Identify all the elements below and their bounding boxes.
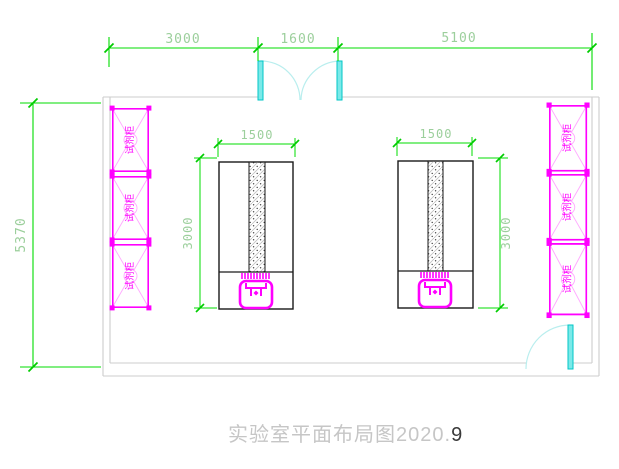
dimension-bench-depth: 3000 xyxy=(181,154,217,312)
dimension-room-height: 5370 xyxy=(14,99,101,372)
door-swing-arc xyxy=(526,325,570,369)
dimension-bench-depth: 3000 xyxy=(478,154,513,312)
cabinet-label: 试剂柜 xyxy=(124,261,136,290)
door-leaf xyxy=(258,61,263,100)
door-swing-arc xyxy=(261,61,300,100)
dimension-text: 3000 xyxy=(165,32,200,47)
reagent-cabinet-column-left: 试剂柜 试剂柜 试剂柜 xyxy=(110,106,152,311)
dimension-text: 1500 xyxy=(241,128,274,142)
drawing-title-suffix: 9 xyxy=(451,424,463,446)
dimension-text: 3000 xyxy=(181,217,195,250)
dimension-text: 5100 xyxy=(441,31,476,46)
floor-plan-canvas: 3000 1600 5100 5370 试剂柜 试剂柜 试剂柜 试剂柜 试剂柜 … xyxy=(0,0,619,469)
lab-bench-left: 1500 3000 xyxy=(181,128,299,312)
dimension-top-chain: 3000 1600 5100 xyxy=(105,31,597,90)
cabinet-label: 试剂柜 xyxy=(562,264,574,293)
floor-plan-drawing: 3000 1600 5100 5370 试剂柜 试剂柜 试剂柜 试剂柜 试剂柜 … xyxy=(0,0,619,469)
hatch-strip xyxy=(249,162,265,272)
top-double-door xyxy=(258,61,342,100)
dimension-text: 5370 xyxy=(14,217,29,252)
cabinet-label: 试剂柜 xyxy=(562,123,574,152)
dimension-text: 1500 xyxy=(420,127,453,141)
cabinet-label: 试剂柜 xyxy=(562,192,574,221)
dimension-bench-width: 1500 xyxy=(214,128,299,157)
dimension-text: 3000 xyxy=(499,217,513,250)
reagent-cabinet-column-right: 试剂柜 试剂柜 试剂柜 xyxy=(547,103,590,319)
dimension-bench-width: 1500 xyxy=(393,127,476,156)
hatch-strip xyxy=(428,161,443,271)
door-leaf xyxy=(568,325,573,369)
wall-outline xyxy=(103,97,599,376)
lab-bench-right: 1500 3000 xyxy=(393,127,513,312)
door-leaf xyxy=(337,61,342,100)
drawing-title-main: 实验室平面布局图2020. xyxy=(228,423,451,446)
cabinet-label: 试剂柜 xyxy=(124,125,136,154)
dimension-text: 1600 xyxy=(280,32,315,47)
bottom-right-door xyxy=(526,325,573,369)
drawing-title: 实验室平面布局图2020.9 xyxy=(228,423,463,446)
door-swing-arc xyxy=(301,61,340,100)
cabinet-label: 试剂柜 xyxy=(124,193,136,222)
